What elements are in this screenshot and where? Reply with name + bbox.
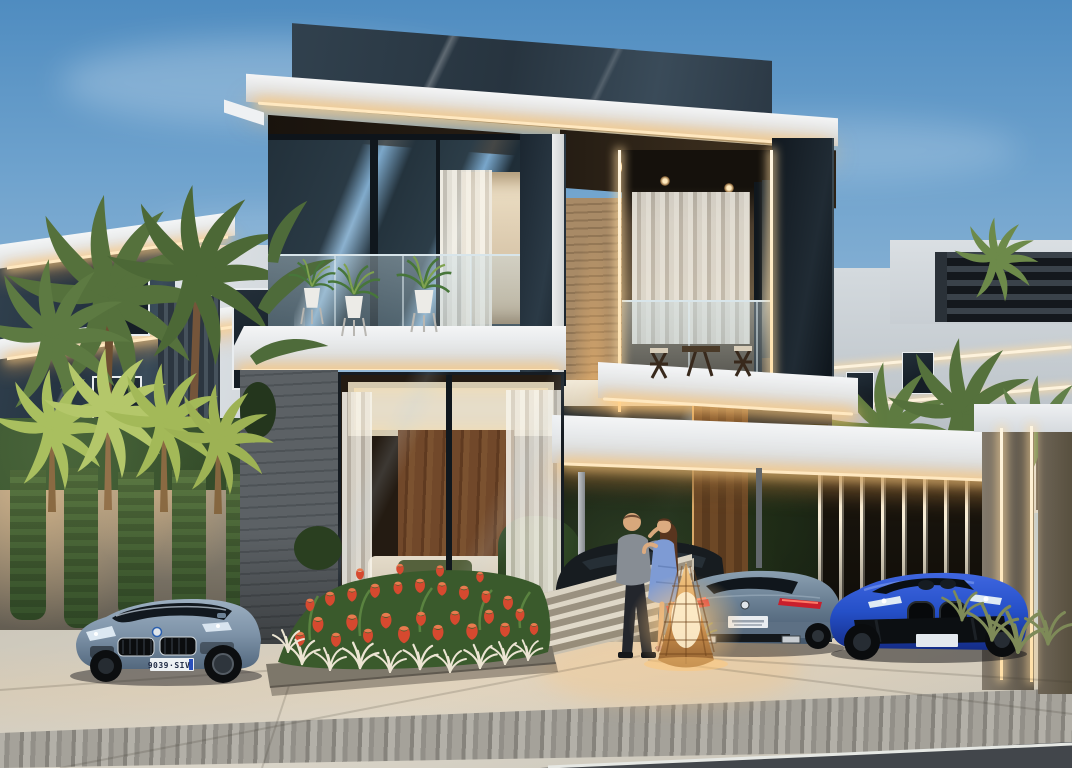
underlit-palms — [0, 348, 274, 514]
balcony-plant — [328, 264, 380, 336]
villa-dusk-render: 9039·SIV — [0, 0, 1072, 768]
shrub — [294, 526, 342, 570]
bmw-coupe-grey: 9039·SIV — [70, 599, 262, 686]
table-and-chairs — [650, 346, 752, 378]
foreground-layer: 9039·SIV — [0, 0, 1072, 768]
shrub — [240, 382, 276, 438]
balcony-plant — [397, 256, 452, 332]
tulip-flowerbed — [266, 564, 558, 696]
license-plate-text: 9039·SIV — [148, 661, 191, 670]
license-plate-blank — [916, 634, 958, 647]
